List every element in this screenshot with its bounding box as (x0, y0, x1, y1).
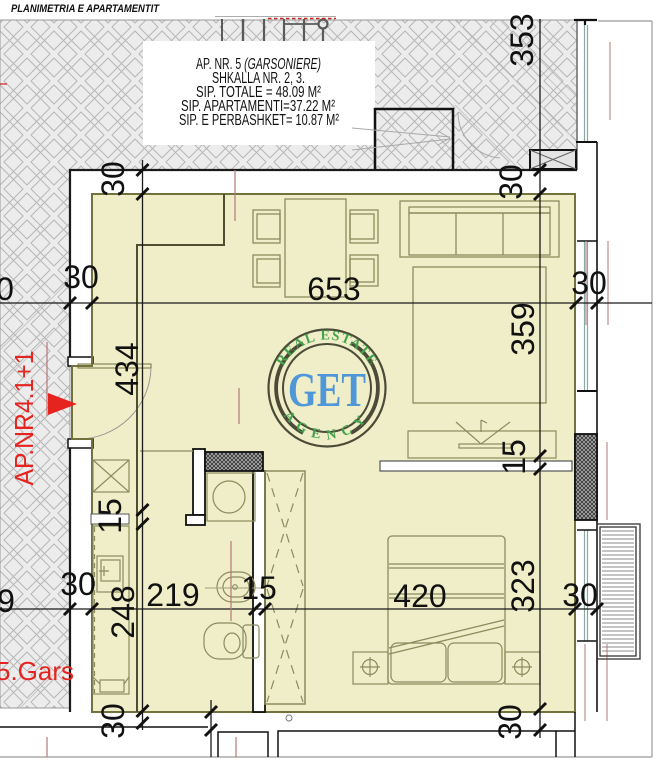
svg-text:434: 434 (109, 342, 145, 395)
svg-text:30: 30 (562, 577, 598, 613)
svg-text:PLANIMETRIA E APARTAMENTIT: PLANIMETRIA E APARTAMENTIT (11, 3, 160, 15)
svg-text:AP.NR4.1+1: AP.NR4.1+1 (9, 351, 39, 486)
svg-text:15: 15 (241, 570, 277, 606)
svg-text:15: 15 (496, 439, 532, 475)
svg-text:GET: GET (288, 362, 366, 417)
svg-text:0: 0 (0, 271, 14, 307)
svg-text:353: 353 (504, 13, 540, 66)
svg-text:15: 15 (92, 498, 128, 534)
svg-text:219: 219 (146, 577, 199, 613)
svg-text:30: 30 (60, 566, 96, 602)
svg-text:30: 30 (95, 703, 131, 739)
svg-text:30: 30 (571, 265, 607, 301)
svg-text:420: 420 (393, 578, 446, 614)
svg-text:9: 9 (0, 583, 15, 619)
svg-text:653: 653 (307, 271, 360, 307)
svg-text:30: 30 (492, 704, 528, 740)
svg-text:30: 30 (95, 161, 131, 197)
svg-text:SIP. E PERBASHKET= 10.87 M²: SIP. E PERBASHKET= 10.87 M² (179, 112, 339, 129)
svg-text:248: 248 (105, 585, 141, 638)
svg-text:5.Gars: 5.Gars (0, 656, 74, 686)
svg-text:30: 30 (63, 259, 99, 295)
svg-text:359: 359 (505, 302, 541, 355)
svg-text:323: 323 (505, 559, 541, 612)
svg-text:30: 30 (493, 164, 529, 200)
